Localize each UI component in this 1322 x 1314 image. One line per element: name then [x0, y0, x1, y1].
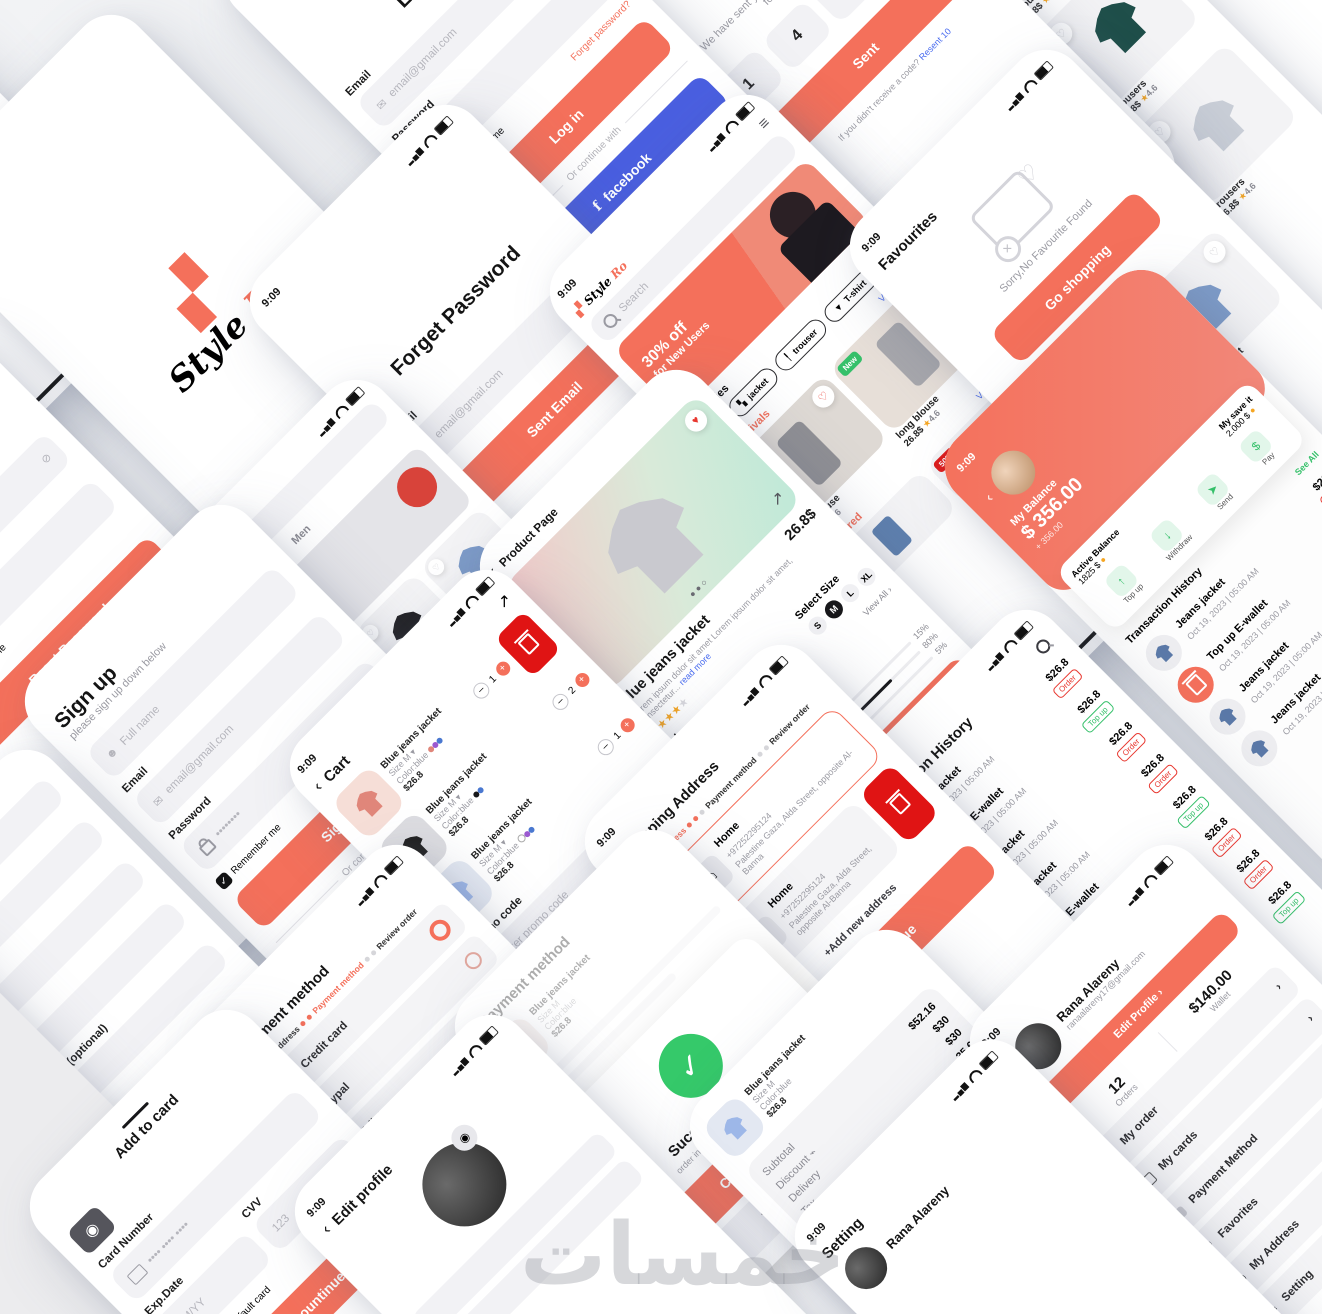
size-option[interactable]: M: [821, 597, 846, 622]
quantity-value: 1: [487, 673, 499, 685]
card-icon: [126, 1263, 148, 1285]
product-photo: [871, 515, 913, 557]
trash-icon: [517, 633, 540, 656]
otp-digit-input[interactable]: 4: [761, 0, 833, 72]
forget-title: Forget Password: [354, 209, 558, 413]
new-badge: New: [836, 350, 864, 378]
back-icon[interactable]: ‹: [319, 1222, 335, 1238]
status-time: 9:09: [305, 1196, 329, 1220]
ui-kit-collage: ♡ Trousers 26.8$ ★4.6 9:09▂▄▆ ‹Trousers …: [0, 0, 1322, 1314]
search-icon: [601, 311, 621, 331]
back-icon[interactable]: ‹: [310, 779, 326, 795]
plus-icon[interactable]: +: [573, 670, 593, 690]
pay-action[interactable]: $Pay: [1238, 428, 1281, 471]
envelope-icon: ✉: [373, 96, 390, 113]
size-option[interactable]: XL: [854, 564, 879, 589]
wallet-icon: [1184, 673, 1207, 696]
minus-icon[interactable]: –: [595, 736, 618, 759]
favourite-icon[interactable]: ♡: [808, 381, 839, 412]
search-icon[interactable]: [1033, 637, 1053, 657]
radio-unselected: [461, 948, 485, 972]
status-time: 9:09: [295, 752, 319, 776]
size-option[interactable]: L: [837, 580, 862, 605]
plus-icon[interactable]: +: [493, 659, 513, 679]
favourite-icon[interactable]: ♡: [1199, 236, 1230, 267]
share-icon[interactable]: ↗: [766, 487, 790, 511]
status-time: 9:09: [260, 286, 284, 310]
eye-icon[interactable]: ⊘: [38, 450, 55, 467]
radio-selected: [425, 915, 455, 945]
minus-icon[interactable]: –: [470, 679, 493, 702]
quantity-value: 2: [566, 685, 578, 697]
status-time: 9:09: [595, 826, 619, 850]
chevron-right-icon: ›: [1305, 1013, 1316, 1024]
resend-link[interactable]: Resent 10: [917, 26, 953, 62]
status-time: 9:09: [860, 231, 884, 255]
size-option[interactable]: S: [805, 613, 830, 638]
send-action[interactable]: ➤Send: [1194, 471, 1237, 514]
facebook-icon: f: [590, 199, 606, 215]
heart-icon: ♡: [1013, 159, 1045, 191]
jacket-icon: ▚: [736, 397, 749, 410]
back-icon[interactable]: ‹: [981, 490, 996, 505]
status-time: 9:09: [805, 1221, 829, 1245]
status-time: 9:09: [555, 277, 579, 301]
plus-icon[interactable]: +: [618, 715, 638, 735]
trash-icon: [888, 792, 911, 815]
trouser-icon: ╿: [782, 352, 794, 364]
user-icon: ☻: [104, 745, 121, 762]
status-time: 9:09: [955, 451, 979, 475]
quantity-value: 1: [611, 730, 623, 742]
share-icon[interactable]: ↗: [492, 589, 516, 613]
top-up-action[interactable]: ↑Top up: [1103, 563, 1146, 606]
tshirt-icon: ▼: [832, 301, 845, 314]
envelope-icon: ✉: [150, 793, 167, 810]
chevron-right-icon: ›: [1273, 981, 1284, 992]
lock-icon: [199, 838, 217, 856]
favourite-icon[interactable]: ♥: [680, 405, 711, 436]
minus-icon[interactable]: –: [549, 690, 572, 713]
withdraw-action[interactable]: ↓Withdraw: [1146, 514, 1194, 562]
filter-icon[interactable]: ≡: [755, 114, 774, 133]
tab-men[interactable]: Men: [289, 523, 313, 547]
discount-value: $30: [930, 1013, 951, 1034]
favourite-icon[interactable]: ♡: [425, 556, 448, 579]
